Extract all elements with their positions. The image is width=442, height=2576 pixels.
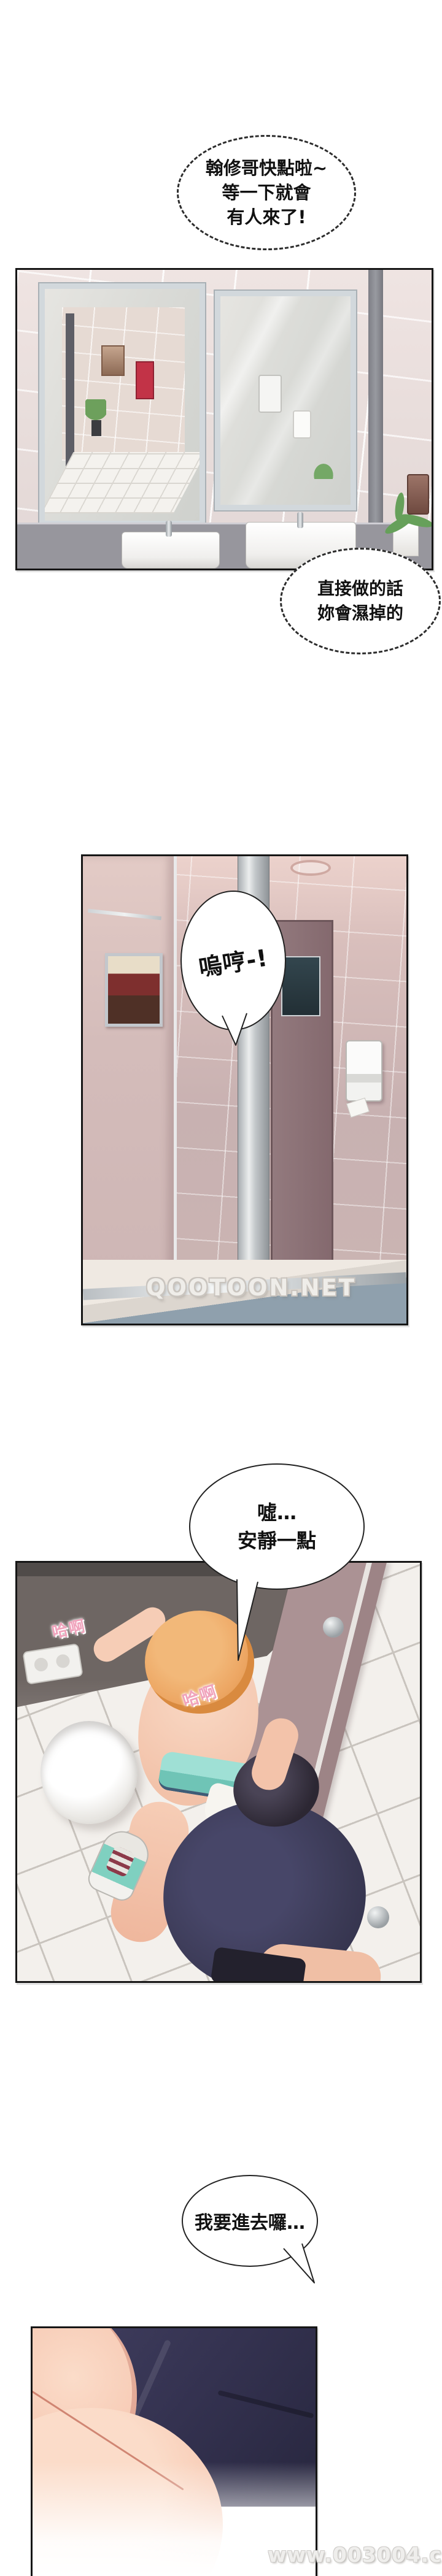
faucet-left xyxy=(166,521,172,537)
speech-bubble-4-line-1: 噓… xyxy=(257,1498,297,1527)
door-hinge-knob xyxy=(367,1906,389,1928)
watermark-qootoon: QOOTOON.NET xyxy=(146,1275,356,1301)
stall-poster xyxy=(281,956,320,1016)
speech-bubble-2: 直接做的話 妳會濕掉的 xyxy=(280,548,441,654)
speech-bubble-1-line-2: 等一下就會 xyxy=(222,180,311,205)
mirror-column xyxy=(83,856,177,1324)
speech-bubble-5-line-1: 我要進去囉… xyxy=(195,2207,305,2234)
panel-1-restroom-mirrors xyxy=(15,268,433,570)
speech-bubble-3: 嗚哼-! xyxy=(180,891,286,1030)
reflection-plant-pot xyxy=(91,420,101,436)
ceiling-light xyxy=(290,860,331,876)
speech-bubble-1-line-1: 翰修哥快點啦~ xyxy=(206,156,327,180)
sneaker-laces xyxy=(105,1846,136,1878)
speech-bubble-4-line-2: 安靜一點 xyxy=(238,1527,316,1555)
watermark-003004: www.003004.com xyxy=(268,2543,442,2567)
reflection-wall xyxy=(62,307,185,461)
reflection-plant-small xyxy=(311,461,336,479)
speech-bubble-3-line-1: 嗚哼-! xyxy=(196,938,270,983)
speech-bubble-4-tail xyxy=(226,1573,269,1665)
speech-bubble-3-tail xyxy=(216,1011,253,1049)
mirror-left xyxy=(39,283,205,526)
reflection-extinguisher-cabinet xyxy=(136,361,154,399)
trash-bin xyxy=(41,1721,138,1824)
outlet-socket xyxy=(33,1657,48,1672)
reflected-rail xyxy=(88,909,161,921)
panel-4-closeup xyxy=(31,2326,317,2576)
soap-dispenser xyxy=(346,1040,382,1102)
outlet-socket xyxy=(55,1654,71,1669)
speech-bubble-1: 翰修哥快點啦~ 等一下就會 有人來了! xyxy=(177,135,356,250)
speech-bubble-1-line-3: 有人來了! xyxy=(227,205,306,229)
faucet-right xyxy=(297,512,303,528)
panel-3-stall-scene: 哈啊 哈啊 xyxy=(15,1561,422,1983)
reflected-picture-frame xyxy=(105,953,163,1027)
speech-bubble-5-tail xyxy=(275,2240,324,2288)
reflection-soap-dispenser xyxy=(258,375,282,413)
reflection-soap-dispenser-2 xyxy=(293,410,311,439)
speech-bubble-4: 噓… 安靜一點 xyxy=(189,1463,365,1590)
comic-page: 翰修哥快點啦~ 等一下就會 有人來了! xyxy=(0,0,442,2576)
towel-dispenser xyxy=(407,474,429,515)
reflection-towel-dispenser xyxy=(101,345,125,376)
speech-bubble-2-line-1: 直接做的話 xyxy=(317,577,403,601)
sink-left xyxy=(122,532,220,569)
speech-bubble-2-line-2: 妳會濕掉的 xyxy=(317,601,403,626)
mirror-right xyxy=(215,291,356,510)
door-hinge-knob xyxy=(323,1617,344,1638)
